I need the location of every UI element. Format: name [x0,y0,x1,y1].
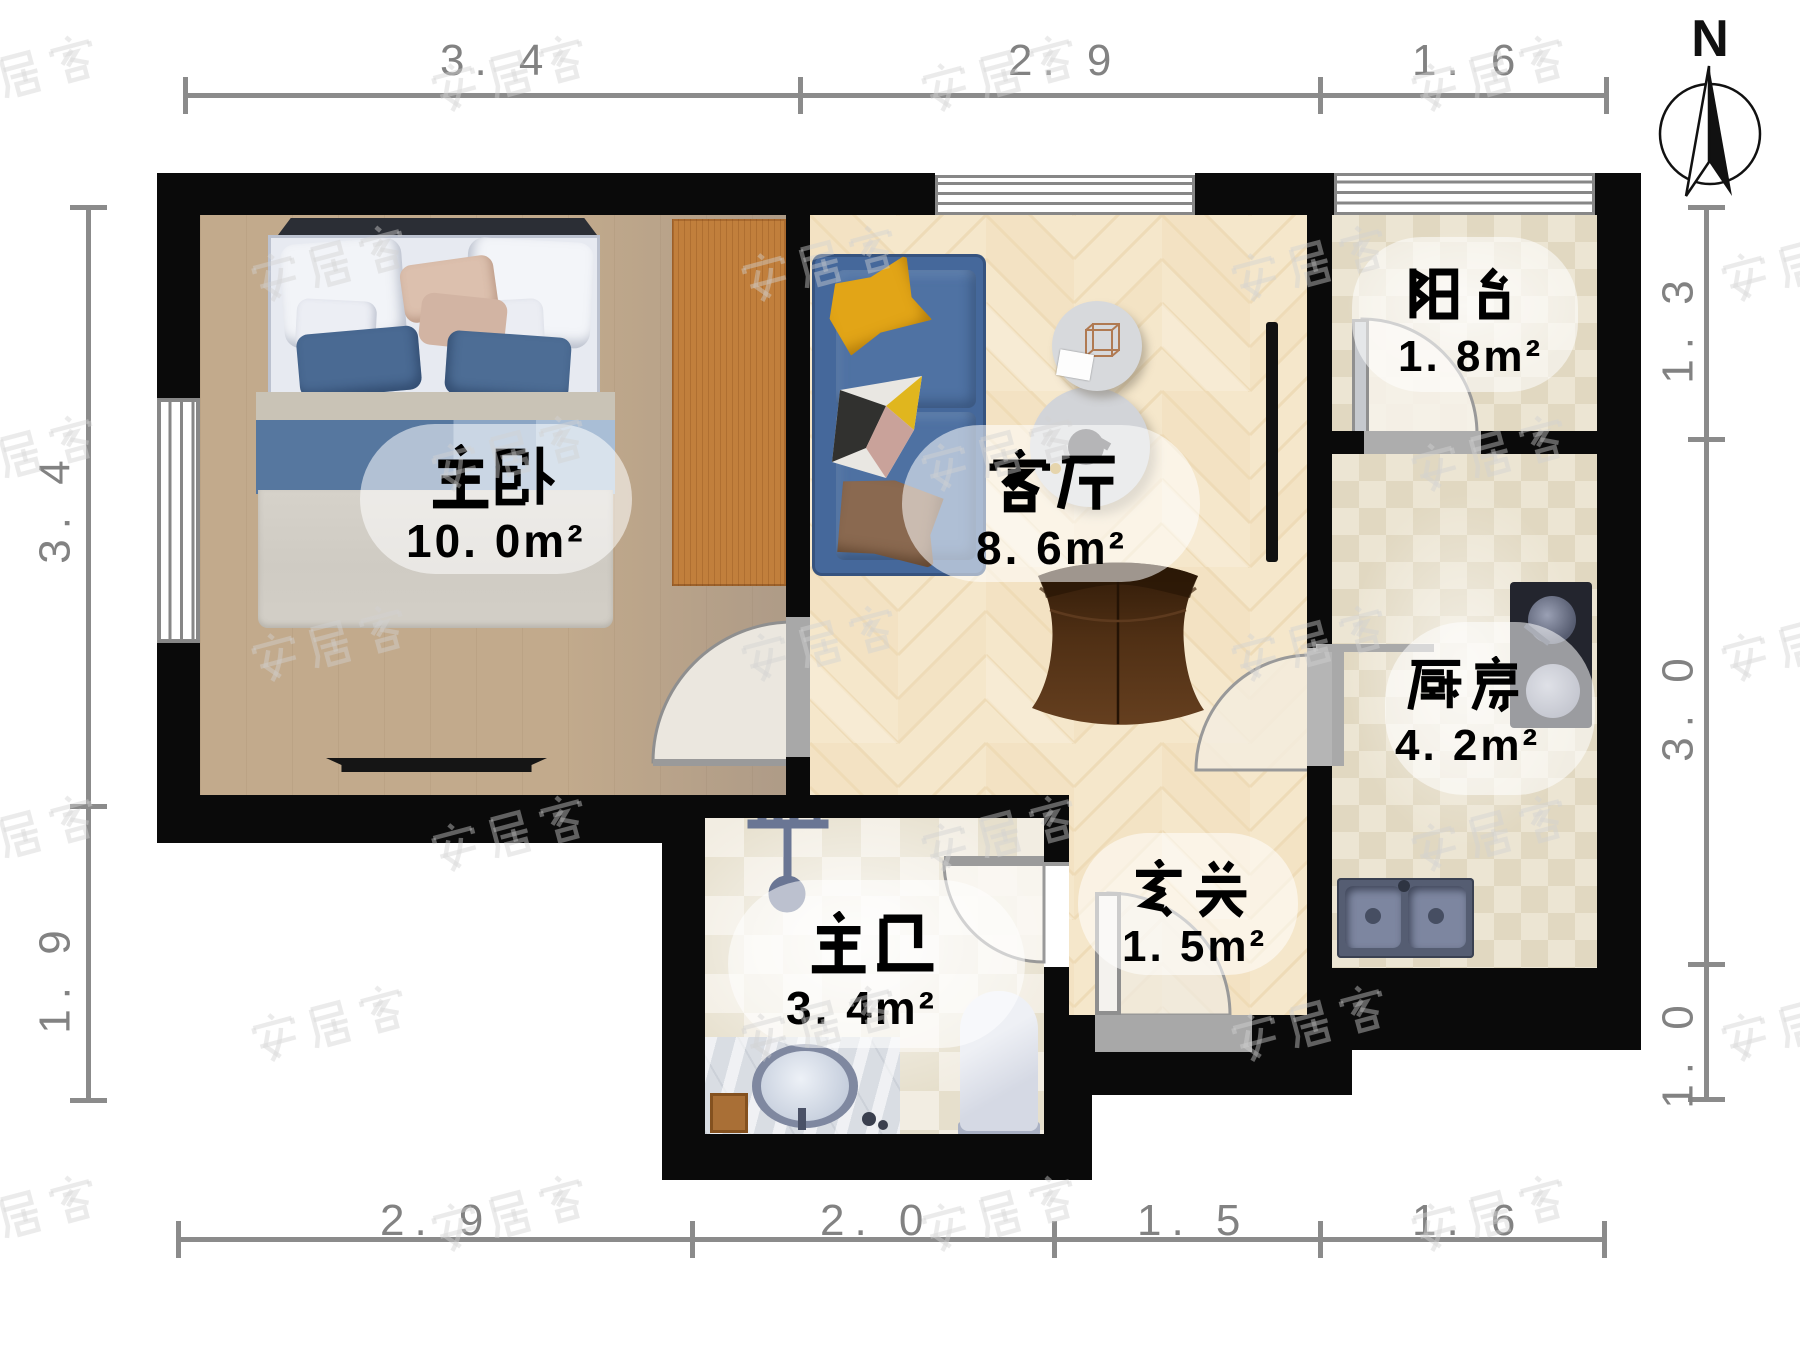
svg-text:N: N [1691,10,1729,68]
